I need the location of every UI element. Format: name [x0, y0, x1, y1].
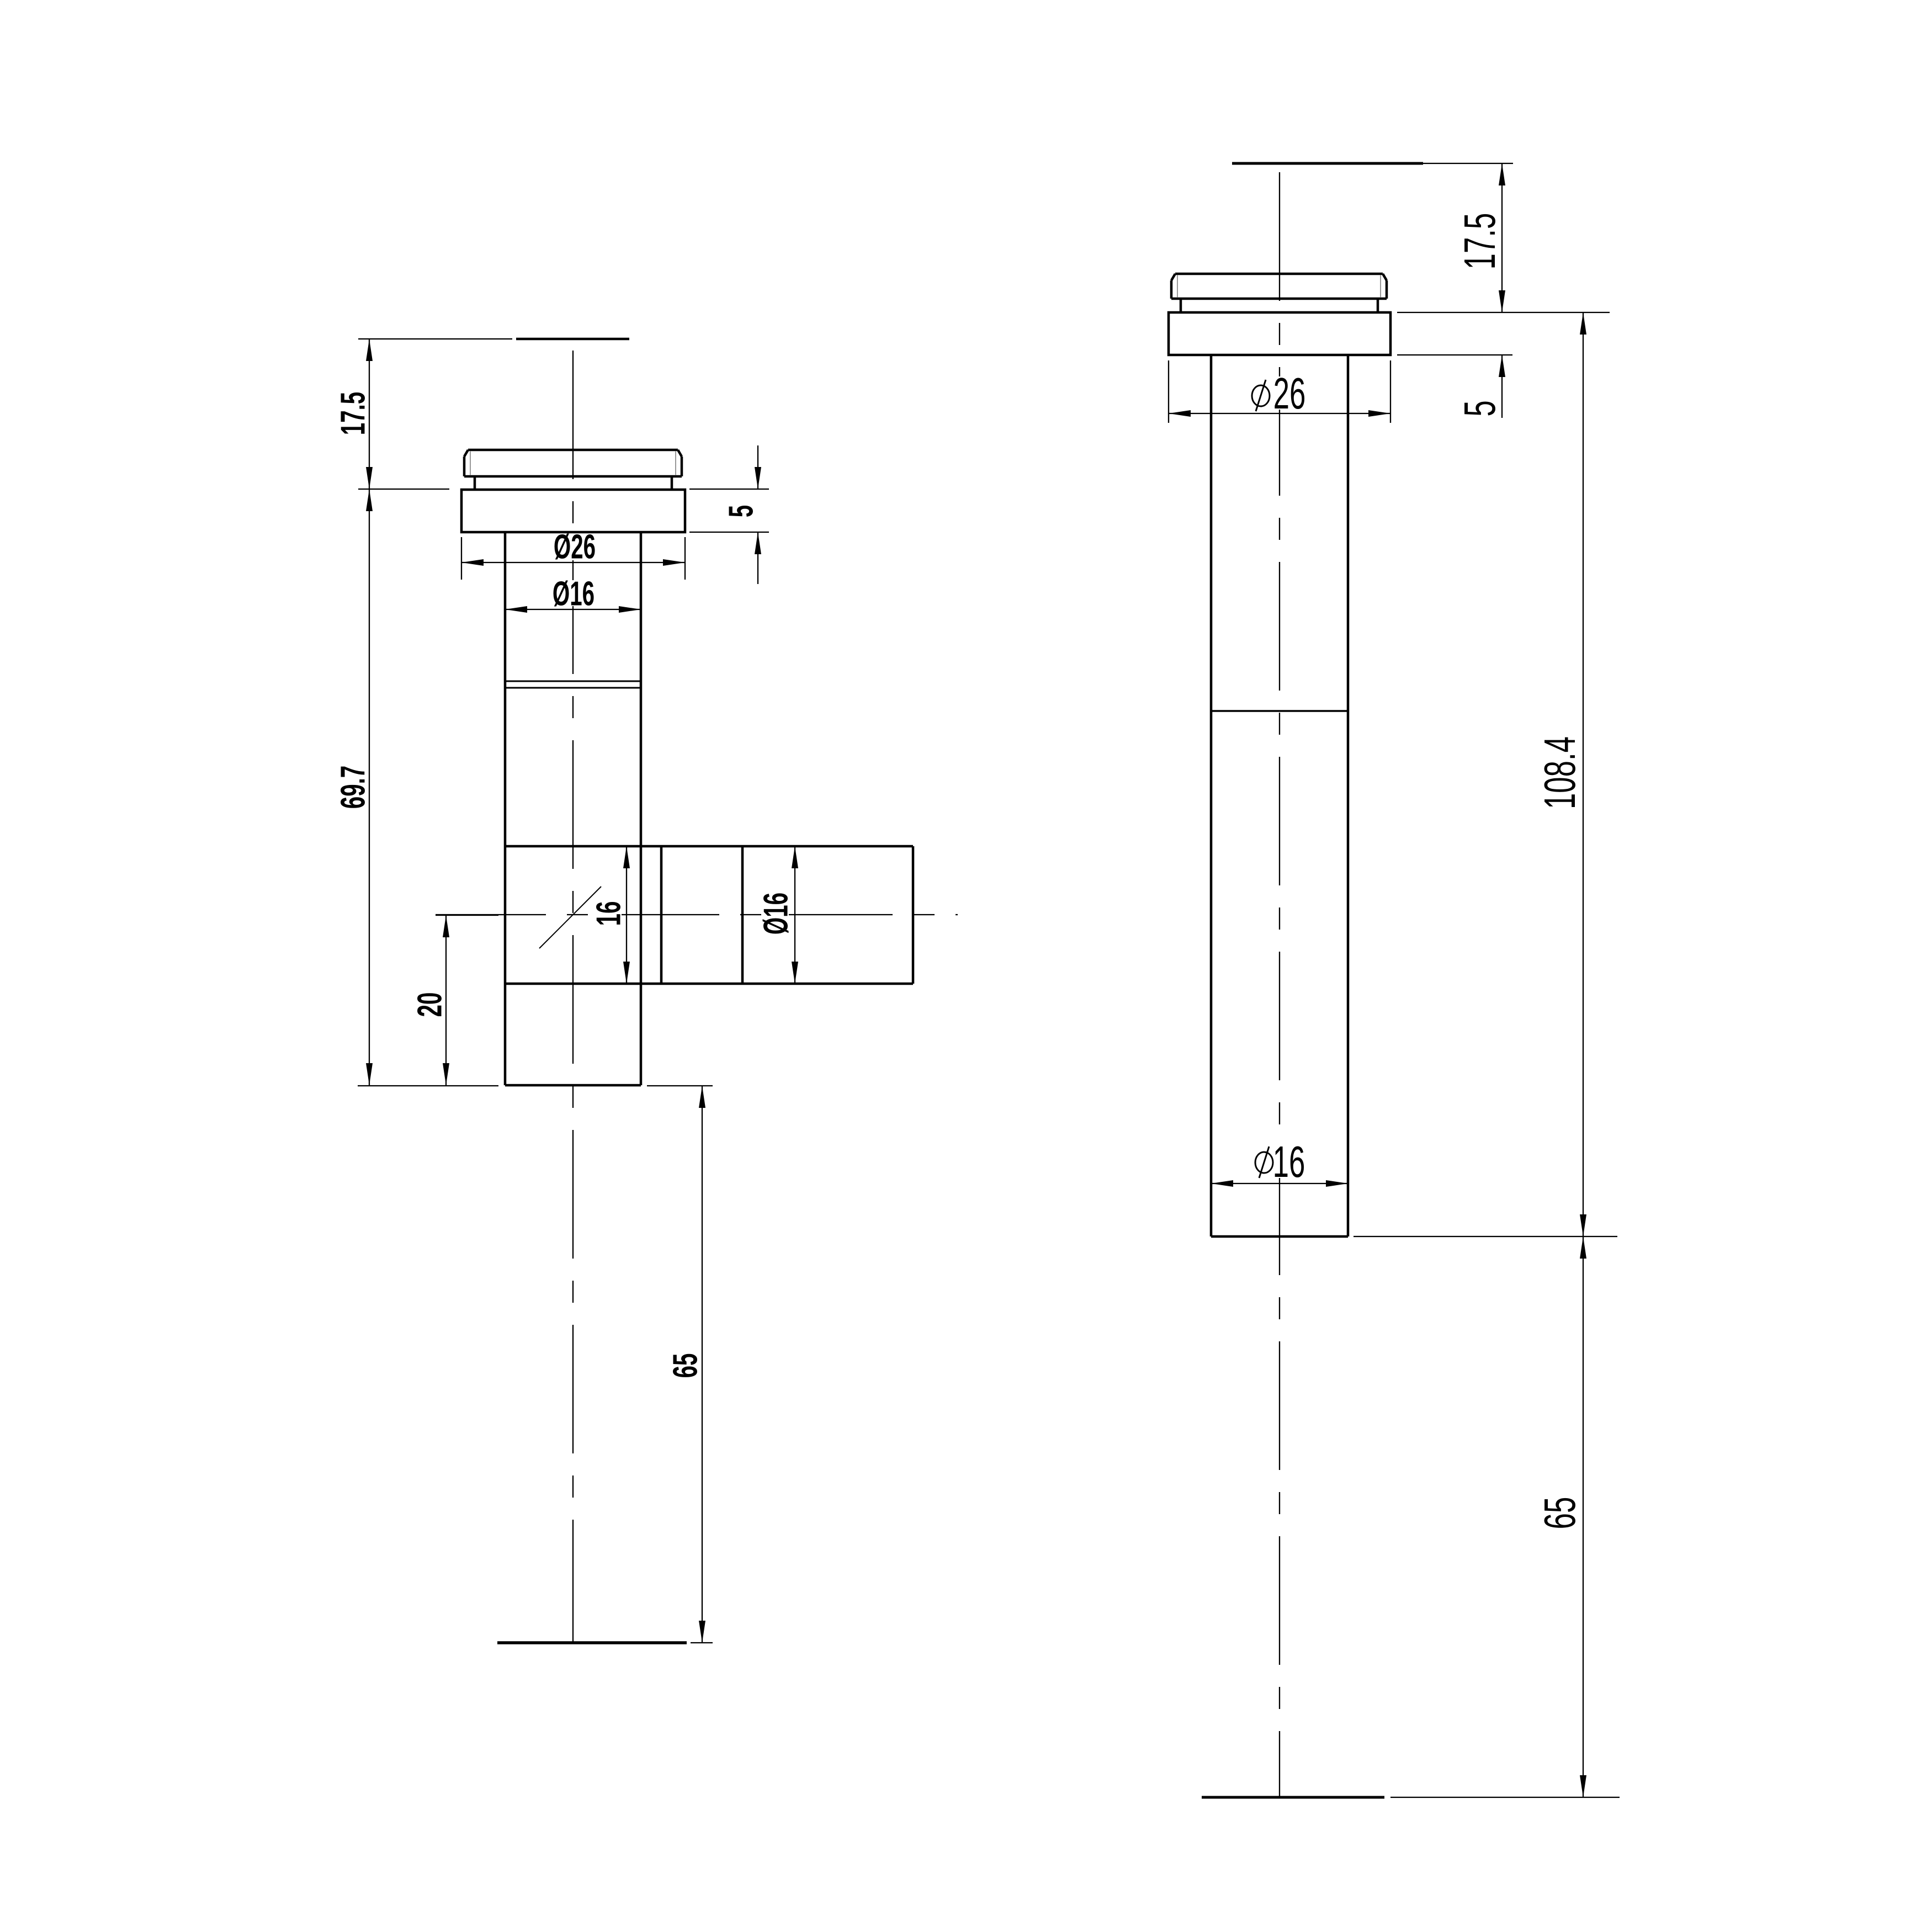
svg-text:16: 16 — [590, 901, 628, 926]
svg-text:65: 65 — [667, 1354, 705, 1378]
svg-text:16: 16 — [1273, 1138, 1305, 1187]
svg-text:5: 5 — [723, 505, 761, 517]
svg-text:Ø16: Ø16 — [553, 575, 595, 613]
svg-text:17.5: 17.5 — [1456, 213, 1505, 270]
svg-text:Ø26: Ø26 — [554, 528, 596, 566]
svg-text:69.7: 69.7 — [335, 766, 373, 809]
svg-text:65: 65 — [1536, 1497, 1585, 1530]
svg-text:108.4: 108.4 — [1536, 736, 1585, 809]
svg-text:5: 5 — [1456, 400, 1505, 416]
svg-text:26: 26 — [1273, 369, 1306, 418]
svg-text:20: 20 — [411, 992, 449, 1017]
svg-text:17.5: 17.5 — [335, 392, 373, 435]
svg-text:Ø16: Ø16 — [757, 893, 795, 935]
